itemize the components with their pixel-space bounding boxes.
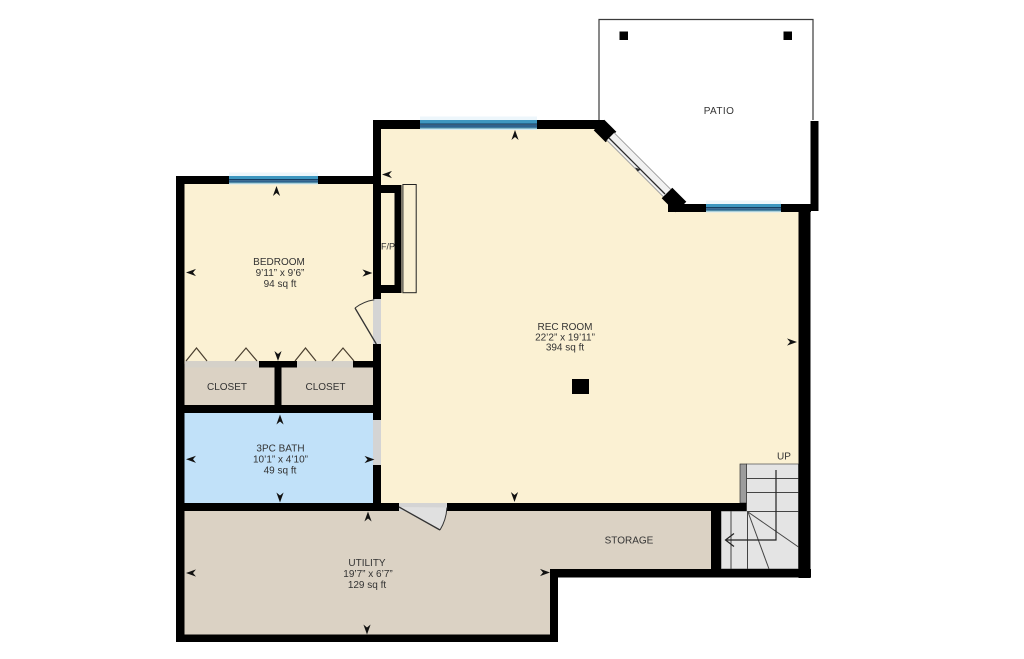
svg-text:10’1” x 4’10”: 10’1” x 4’10”	[253, 455, 308, 466]
svg-text:CLOSET: CLOSET	[305, 382, 345, 393]
svg-text:9’11” x 9’6”: 9’11” x 9’6”	[256, 268, 305, 279]
svg-text:F/P: F/P	[381, 242, 395, 252]
svg-text:3PC BATH: 3PC BATH	[256, 444, 304, 455]
svg-text:REC ROOM: REC ROOM	[538, 322, 593, 333]
svg-text:STORAGE: STORAGE	[605, 536, 654, 547]
svg-text:UTILITY: UTILITY	[348, 558, 386, 569]
svg-text:PATIO: PATIO	[704, 106, 735, 117]
svg-text:49 sq ft: 49 sq ft	[264, 466, 297, 477]
svg-text:94 sq ft: 94 sq ft	[264, 279, 297, 290]
svg-text:394 sq ft: 394 sq ft	[546, 343, 585, 354]
svg-text:129 sq ft: 129 sq ft	[348, 580, 387, 591]
svg-text:UP: UP	[777, 452, 791, 463]
svg-text:BEDROOM: BEDROOM	[253, 257, 305, 268]
svg-text:CLOSET: CLOSET	[207, 382, 247, 393]
svg-text:19’7” x 6’7”: 19’7” x 6’7”	[343, 569, 392, 580]
